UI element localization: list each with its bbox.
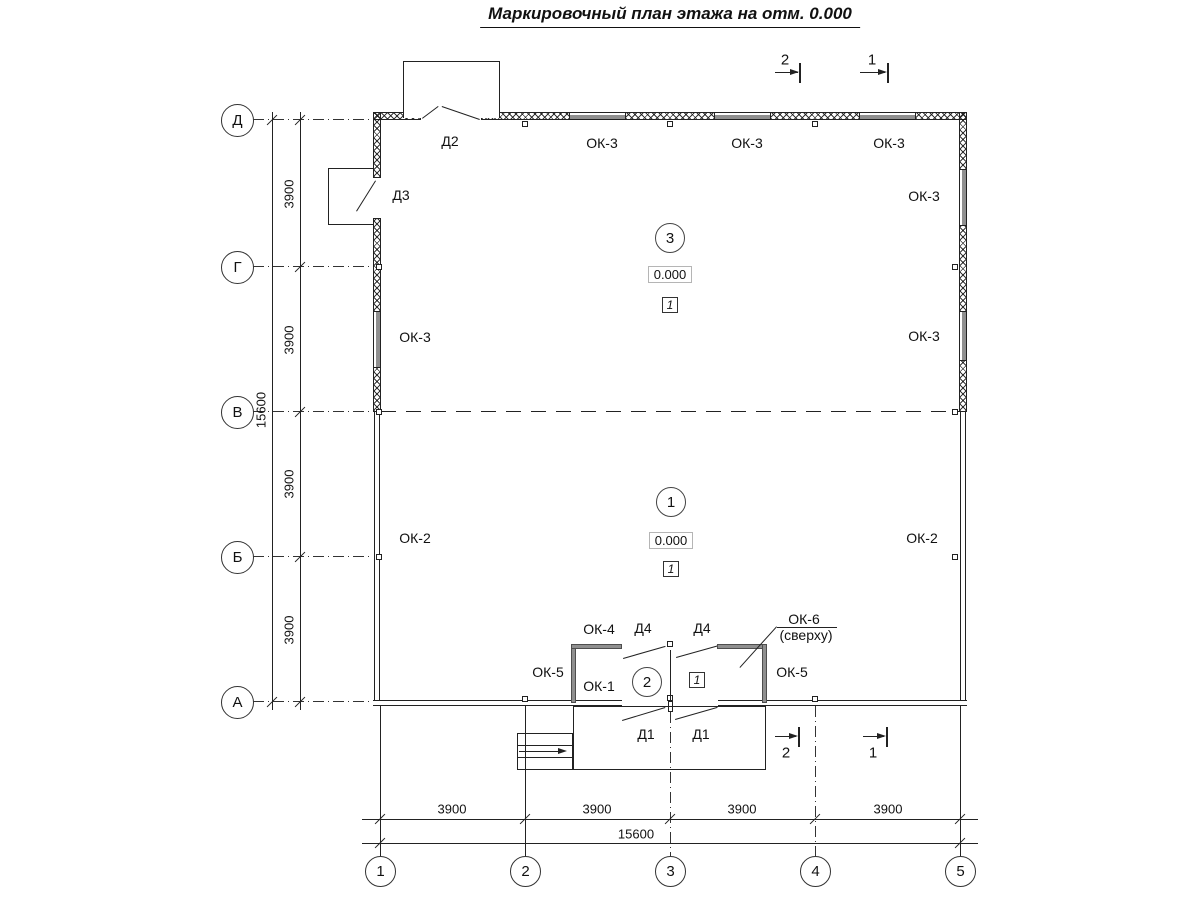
room-number: 3 <box>666 230 674 247</box>
axis-row-circle: Д <box>221 104 254 137</box>
window-label-ok6: ОК-6 <box>788 611 820 627</box>
dim-label-3900: 3900 <box>583 802 612 817</box>
window-label-ok3: ОК-3 <box>908 188 940 204</box>
drawing-title: Маркировочный план этажа на отм. 0.000 <box>480 4 860 28</box>
dim-label-3900: 3900 <box>282 180 297 209</box>
window-ok3 <box>570 112 625 120</box>
window-ok3 <box>715 112 770 120</box>
axis-row-label: В <box>232 404 242 421</box>
axis-col-circle: 2 <box>510 856 541 887</box>
section-2-bar <box>799 63 801 83</box>
axis-row-circle: Б <box>221 541 254 574</box>
room-number-circle: 2 <box>632 667 662 697</box>
wall-marker <box>376 264 382 270</box>
axis-col-circle: 4 <box>800 856 831 887</box>
section-1-bar <box>886 727 888 747</box>
section-1-arrowhead <box>877 733 886 739</box>
axis-col-circle: 5 <box>945 856 976 887</box>
axis-col-circle: 3 <box>655 856 686 887</box>
wall-pier <box>959 112 967 170</box>
axis-col-label: 2 <box>521 863 529 880</box>
dim-label-3900: 3900 <box>438 802 467 817</box>
elevation-box: 0.000 <box>649 532 693 549</box>
gridline-row-b <box>253 556 373 557</box>
wall-marker <box>522 696 528 702</box>
door-meeting-line <box>670 650 671 700</box>
finish-type: 1 <box>694 673 701 687</box>
wall-marker <box>952 264 958 270</box>
wall-marker <box>952 409 958 415</box>
elevation-box: 0.000 <box>648 266 692 283</box>
ext-line-col5 <box>960 706 961 856</box>
door-label-d4: Д4 <box>634 620 651 636</box>
vestibule-partition-ok5-right <box>762 644 767 703</box>
section-1-label: 1 <box>869 745 877 762</box>
window-label-ok2: ОК-2 <box>906 530 938 546</box>
window-ok3 <box>959 170 967 225</box>
vestibule-partition-ok5-left <box>571 644 576 703</box>
dim-label-3900: 3900 <box>728 802 757 817</box>
window-label-ok3: ОК-3 <box>731 135 763 151</box>
wall-pier <box>959 360 967 412</box>
dim-label-3900: 3900 <box>282 326 297 355</box>
section-2-arrowhead <box>789 733 798 739</box>
window-label-ok3: ОК-3 <box>586 135 618 151</box>
elevation-value: 0.000 <box>655 533 688 548</box>
door-post-d4 <box>667 641 673 647</box>
gridline-row-v <box>253 411 373 412</box>
axis-row-label: Б <box>233 549 243 566</box>
window-label-ok6-note: (сверху) <box>779 627 832 643</box>
centerline-col4 <box>815 706 816 856</box>
dim-line-bottom-total <box>362 843 978 844</box>
floor-plan-drawing: Маркировочный план этажа на отм. 0.000 3… <box>0 0 1200 900</box>
wall-marker <box>812 696 818 702</box>
window-label-ok5: ОК-5 <box>776 664 808 680</box>
wall-marker <box>667 121 673 127</box>
section-2-arrowhead <box>790 69 799 75</box>
wall-marker <box>812 121 818 127</box>
vestibule-partition-ok4 <box>571 644 622 649</box>
window-ok3 <box>959 312 967 360</box>
section-2-label: 2 <box>782 745 790 762</box>
window-label-ok3: ОК-3 <box>399 329 431 345</box>
dim-label-3900: 3900 <box>874 802 903 817</box>
room-number-circle: 1 <box>656 487 686 517</box>
wall-pier <box>959 225 967 312</box>
finish-type-box: 1 <box>689 672 705 688</box>
finish-type-box: 1 <box>663 561 679 577</box>
roof-overhang-dashed-line <box>381 411 959 412</box>
dim-label-3900: 3900 <box>282 470 297 499</box>
wall-marker <box>952 554 958 560</box>
section-1-bar <box>887 63 889 83</box>
finish-type: 1 <box>667 298 674 312</box>
window-ok3 <box>373 312 381 367</box>
door-label-d2: Д2 <box>441 133 458 149</box>
window-ok3 <box>860 112 915 120</box>
axis-col-circle: 1 <box>365 856 396 887</box>
section-2-bar <box>798 727 800 747</box>
finish-type: 1 <box>668 562 675 576</box>
finish-type-box: 1 <box>662 297 678 313</box>
step-tread-line <box>517 757 573 758</box>
entrance-platform <box>573 706 766 770</box>
dim-label-15600: 15600 <box>254 392 269 428</box>
section-1-label: 1 <box>868 52 876 69</box>
dim-line-left-total <box>272 112 273 710</box>
door-label-d4: Д4 <box>693 620 710 636</box>
dim-label-3900: 3900 <box>282 616 297 645</box>
axis-col-label: 3 <box>666 863 674 880</box>
door-label-d1: Д1 <box>637 726 654 742</box>
glazed-wall-ok2 <box>960 412 966 706</box>
wall-marker <box>376 409 382 415</box>
step-tread-line <box>517 745 573 746</box>
gridline-row-g <box>253 266 373 267</box>
window-label-ok5: ОК-5 <box>532 664 564 680</box>
axis-row-label: А <box>232 694 242 711</box>
door-leaf-d4 <box>623 646 666 659</box>
axis-row-circle: В <box>221 396 254 429</box>
axis-row-circle: Г <box>221 251 254 284</box>
wall-pier <box>373 367 381 412</box>
wall-marker <box>522 121 528 127</box>
steps-direction-arrow-shaft <box>519 751 563 752</box>
axis-col-label: 5 <box>956 863 964 880</box>
axis-col-label: 1 <box>376 863 384 880</box>
axis-row-circle: А <box>221 686 254 719</box>
dim-label-15600: 15600 <box>618 827 654 842</box>
elevation-value: 0.000 <box>654 267 687 282</box>
steps-direction-arrowhead <box>558 748 567 754</box>
room-number: 2 <box>643 674 651 691</box>
door-label-d3: Д3 <box>392 187 409 203</box>
section-2-label: 2 <box>781 52 789 69</box>
window-label-ok1: ОК-1 <box>583 678 615 694</box>
wall-pier <box>373 112 381 178</box>
door-label-d1: Д1 <box>692 726 709 742</box>
ext-line-col2 <box>525 706 526 856</box>
ext-line-col1 <box>380 706 381 856</box>
window-label-ok3: ОК-3 <box>908 328 940 344</box>
wall-pier <box>770 112 860 120</box>
axis-row-label: Г <box>233 259 241 276</box>
axis-col-label: 4 <box>811 863 819 880</box>
window-label-ok3: ОК-3 <box>873 135 905 151</box>
wall-marker <box>376 554 382 560</box>
room-number: 1 <box>667 494 675 511</box>
callout-shelf-line <box>777 627 837 628</box>
window-label-ok4: ОК-4 <box>583 621 615 637</box>
axis-row-label: Д <box>232 112 242 129</box>
window-label-ok2: ОК-2 <box>399 530 431 546</box>
wall-pier <box>625 112 715 120</box>
door-leaf-d4 <box>676 645 720 658</box>
room-number-circle: 3 <box>655 223 685 253</box>
section-1-arrowhead <box>878 69 887 75</box>
